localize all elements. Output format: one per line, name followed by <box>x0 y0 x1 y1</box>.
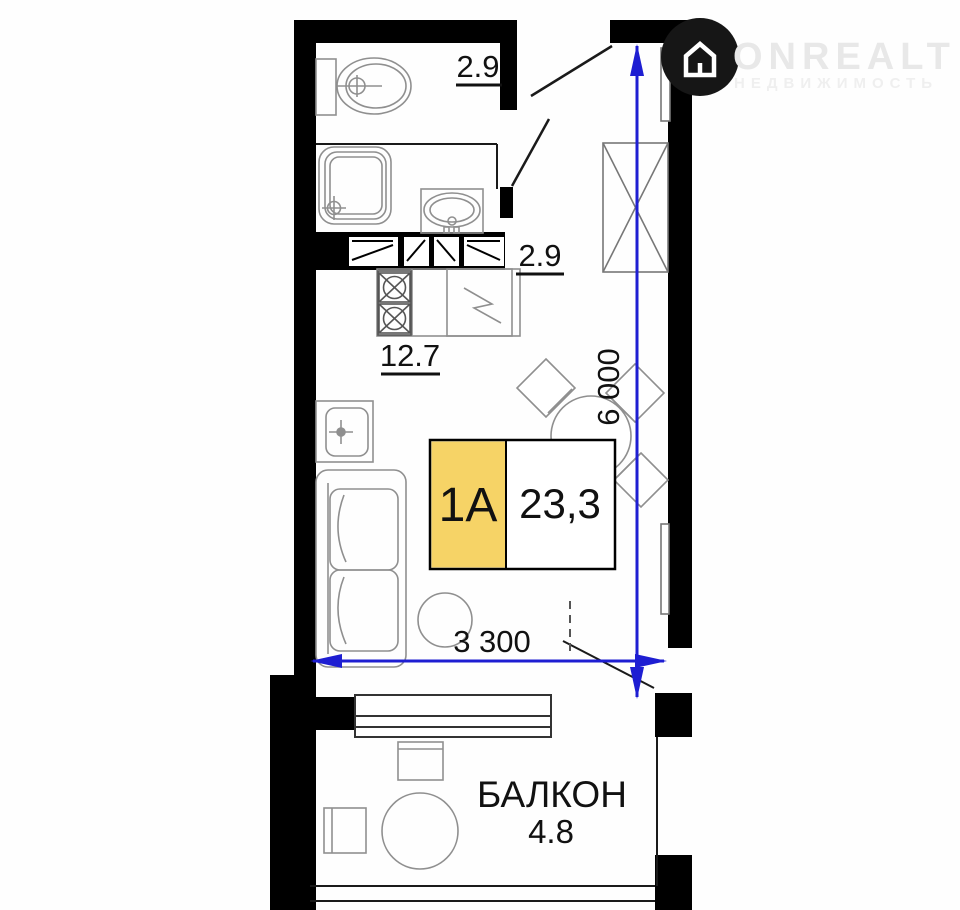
sofa-cushion-fold <box>338 577 346 644</box>
fridge-outline <box>447 269 512 336</box>
balcony-name-label: БАЛКОН <box>477 774 627 815</box>
arrow-down <box>630 667 644 699</box>
logo-circle <box>661 18 739 96</box>
bathroom-area-label: 2.9 <box>456 49 499 84</box>
washbasin <box>421 189 483 233</box>
tagline-text: НЕДВИЖИМОСТЬ <box>734 75 938 92</box>
wall-wc-stub <box>500 43 517 110</box>
wall-bath-door-stub <box>500 187 513 218</box>
hallway-area-label: 2.9 <box>518 238 561 273</box>
unit-info-box: 1A 23,3 <box>430 440 615 569</box>
basin-tap <box>448 217 456 225</box>
wall-right <box>668 20 692 648</box>
basin-bowl-inner <box>430 198 474 222</box>
toilet <box>316 58 411 115</box>
sofa-cushion <box>330 570 398 651</box>
door-opening <box>404 237 429 266</box>
brand-text: ONREALT <box>733 36 956 78</box>
vertical-dimension-label: 6 000 <box>591 348 626 426</box>
shower-tray <box>319 147 391 224</box>
wall-left <box>294 20 316 677</box>
living-kitchen-area-label: 12.7 <box>380 338 440 373</box>
wall-top-left <box>294 20 517 43</box>
balcony-table <box>382 793 458 869</box>
balcony-cabinet <box>398 742 443 780</box>
stove <box>378 271 411 335</box>
balcony-stool <box>324 808 366 853</box>
sofa-cushion-fold <box>338 495 346 562</box>
bath-wall-door-openings <box>349 237 504 266</box>
unit-type-label: 1A <box>439 479 498 532</box>
arrow-up <box>630 44 644 76</box>
sofa-cushion <box>330 489 398 570</box>
sofa <box>316 470 406 667</box>
shower-outline <box>330 157 382 214</box>
floor-plan: 1A 23,3 6 000 3 300 2.9 2.9 12.7 БАЛКОН … <box>0 0 960 910</box>
horizontal-dimension-label: 3 300 <box>453 624 531 659</box>
wall-balcony-left <box>270 675 316 910</box>
balcony-door-panel <box>661 524 669 614</box>
kitchen-sink <box>316 401 373 462</box>
entrance-door-leaf <box>531 46 612 96</box>
total-area-label: 23,3 <box>519 480 601 527</box>
wall-balcony-left-ext <box>310 697 355 730</box>
balcony-area-label: 4.8 <box>528 813 574 850</box>
fridge-zigzag <box>464 288 501 323</box>
kitchen-counter <box>377 269 520 336</box>
stove-outline <box>378 271 411 335</box>
wall-balcony-right-bottom <box>655 855 692 910</box>
balcony-window-unit <box>355 695 551 737</box>
toilet-tank <box>316 59 336 115</box>
balcony-furniture <box>324 742 458 869</box>
wall-balcony-right-top <box>655 693 692 737</box>
bathroom-door-leaf <box>512 119 549 186</box>
arrow-right <box>635 654 667 668</box>
fridge <box>447 269 512 336</box>
watermark-logo: ONREALT НЕДВИЖИМОСТЬ <box>661 18 956 96</box>
floor-plan-page: 1A 23,3 6 000 3 300 2.9 2.9 12.7 БАЛКОН … <box>0 0 960 910</box>
